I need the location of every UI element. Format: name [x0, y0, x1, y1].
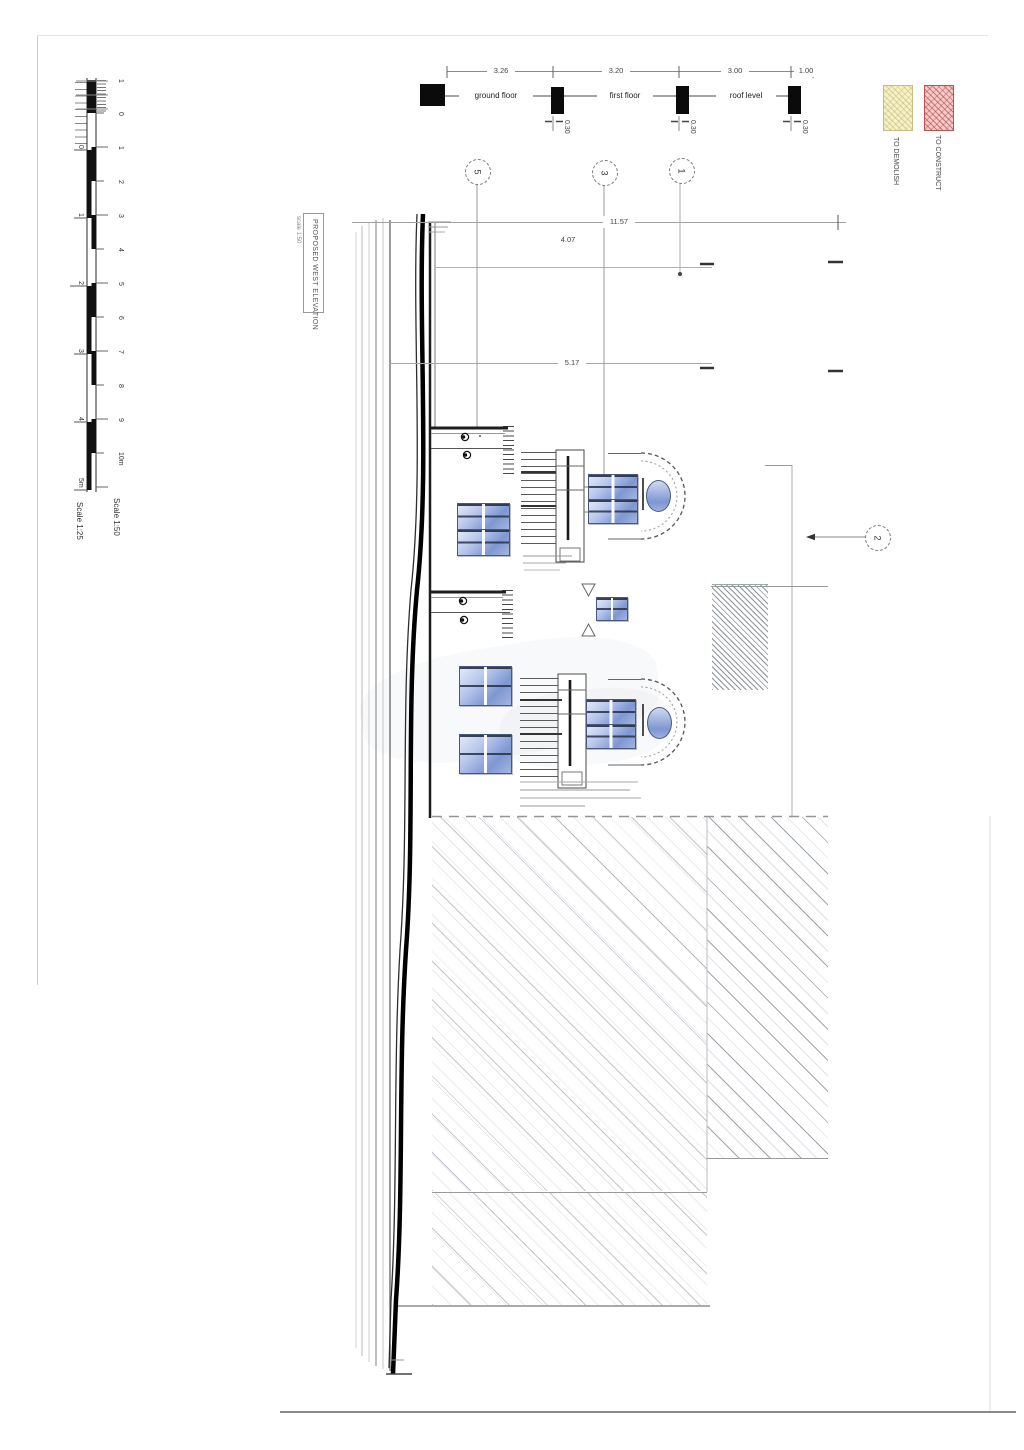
level-marker — [420, 84, 445, 106]
window-upper-left-2 — [457, 529, 510, 556]
label-roof-level: roof level — [716, 89, 776, 102]
label-first-floor: first floor — [597, 89, 653, 102]
scalebar-left-mark-1: 1 — [77, 213, 84, 217]
sheet-border — [37, 35, 1016, 1412]
slab-dim-3: 0.30 — [801, 120, 808, 134]
window-mid — [596, 597, 628, 621]
legend-swatch-construct — [924, 85, 954, 131]
level-marker — [676, 86, 689, 114]
level-marker — [551, 87, 564, 114]
linework-layer — [0, 0, 1024, 1450]
bay-basin-lower — [647, 707, 672, 739]
scalebar-right-mark-5: 4 — [117, 248, 124, 252]
grid-bubble-3-label: 3 — [600, 170, 610, 175]
label-ground-floor: ground floor — [459, 89, 533, 102]
window-lower-left-1 — [459, 666, 512, 706]
scalebar-right-mark-3: 2 — [117, 180, 124, 184]
scalebar-right-mark-10: 9 — [117, 418, 124, 422]
window-lower-right-1 — [586, 699, 636, 725]
scalebar-right-mark-1: 0 — [117, 112, 124, 116]
grid-bubble-1-label: 1 — [677, 168, 687, 173]
window-upper-left-1 — [457, 503, 510, 530]
scalebar-left-mark-5: 5m — [77, 478, 84, 488]
window-upper-right-2 — [588, 499, 638, 524]
scalebar-left-mark-4: 4 — [77, 417, 84, 421]
dim-roof: 3.00 — [721, 65, 749, 77]
dim-overall: 11.57 — [603, 216, 635, 228]
scalebar-left-mark-2: 2 — [77, 281, 84, 285]
scalebar-right-mark-11: 10m — [117, 452, 124, 466]
scalebar-label-1-25: Scale 1:25 — [75, 502, 84, 540]
scalebar-right-mark-8: 7 — [117, 350, 124, 354]
drawing-scale-note: scale 1:50 — [295, 216, 301, 243]
door-swing-symbols — [582, 584, 595, 636]
window-lower-right-2 — [586, 724, 636, 749]
dim-parapet: 1.00 — [794, 65, 818, 77]
slab-dim-2: 0.30 — [689, 120, 696, 134]
grid-bubble-2: 2 — [865, 525, 891, 551]
ground-section-band — [356, 214, 451, 1374]
dim-upper: 4.07 — [554, 234, 582, 246]
drawing-title: PROPOSED WEST ELEVATION — [311, 219, 318, 330]
legend-swatch-demolish — [883, 85, 913, 131]
scalebar-right-mark-6: 5 — [117, 282, 124, 286]
drawing-sheet: 5 3 1 2 TO DEMOLISH TO CONSTRUCT PROPOSE… — [0, 0, 1024, 1450]
window-upper-right-1 — [588, 474, 638, 500]
scale-bar-linework — [70, 78, 108, 492]
dim-ground-floor: 3.26 — [487, 65, 515, 77]
scalebar-right-mark-9: 8 — [117, 384, 124, 388]
bay-basin-upper — [646, 480, 671, 512]
scalebar-right-mark-7: 6 — [117, 316, 124, 320]
dim-mid: 5.17 — [558, 357, 586, 369]
grid-bubble-3: 3 — [592, 160, 618, 186]
scalebar-right-mark-2: 1 — [117, 146, 124, 150]
level-marker — [788, 86, 801, 114]
grid-bubble-1: 1 — [669, 158, 695, 184]
scalebar-label-1-50: Scale 1:50 — [112, 498, 121, 536]
scalebar-left-mark-3: 3 — [77, 349, 84, 353]
grid-bubble-5: 5 — [465, 159, 491, 185]
grid-bubble-5-label: 5 — [473, 169, 483, 174]
scalebar-right-mark-0: 1 — [117, 79, 124, 83]
scalebar-left-mark-0: 0 — [77, 145, 84, 149]
legend-label-demolish: TO DEMOLISH — [892, 137, 899, 185]
scalebar-right-mark-4: 3 — [117, 214, 124, 218]
legend-label-construct: TO CONSTRUCT — [934, 135, 941, 190]
window-lower-left-2 — [459, 734, 512, 774]
overall-dimension-lines — [352, 215, 846, 371]
dim-first-floor: 3.20 — [602, 65, 630, 77]
slab-dim-1: 0.30 — [563, 120, 570, 134]
grid-bubble-2-label: 2 — [873, 535, 883, 540]
grid-leader-lines — [477, 183, 866, 540]
